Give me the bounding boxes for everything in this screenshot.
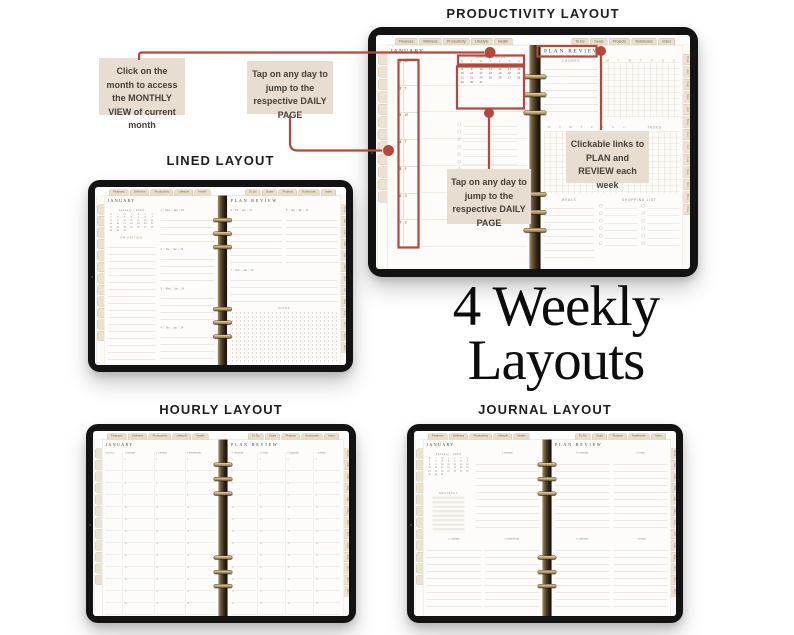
hour-row: 14	[316, 555, 341, 567]
month-tab[interactable]: Nov	[671, 575, 676, 585]
top-tab[interactable]: Productivity	[443, 38, 470, 45]
day-column[interactable]: 2 Tuesday 6789101112131415161718	[154, 452, 185, 615]
side-tab[interactable]	[416, 564, 423, 574]
productivity-left-page: JANUARY 1M2T3W4T5F6S7S January - 2024 MT…	[387, 45, 530, 269]
top-tab[interactable]: Wellness	[419, 38, 442, 45]
top-tab[interactable]: Notebooks	[632, 38, 657, 45]
month-tab[interactable]: Sep	[344, 552, 349, 562]
month-tab[interactable]: May	[344, 506, 349, 516]
month-tab[interactable]: Nov	[344, 575, 349, 585]
hour-row: 8	[288, 483, 313, 495]
hourly-right-columns: 4 Thursday 6789101112131415161718 5 Frid…	[230, 452, 342, 615]
side-tab[interactable]	[95, 495, 102, 505]
month-tab[interactable]: Feb	[344, 472, 349, 482]
month-tab[interactable]: Oct	[341, 320, 346, 330]
week-day-column[interactable]: 1M2T3W4T5F6S7S	[399, 59, 419, 248]
hour-row: 13	[316, 543, 341, 555]
heading-hourly-layout: HOURLY LAYOUT	[86, 402, 356, 417]
big-title-line2: Layouts	[400, 334, 712, 388]
month-tab[interactable]: Oct	[344, 564, 349, 574]
callout-monthly-view: Click on the month to access the MONTHLY…	[99, 58, 185, 115]
hour-row: 17	[288, 591, 313, 603]
top-tab[interactable]: Projects	[609, 38, 630, 45]
day-column[interactable]: 4 Thursday 6789101112131415161718	[230, 452, 258, 615]
hour-row: 8	[232, 483, 257, 495]
month-tab[interactable]: Apr	[683, 104, 690, 115]
tablet-hourly: FinancesWellnessProductivityLifestyleHea…	[86, 424, 356, 623]
hour-row: 14	[288, 555, 313, 567]
shopping-column: SHOPPING LIST	[599, 199, 680, 260]
lined-day-section: 5|Fri|Jan|24	[231, 208, 283, 264]
meals-lines	[544, 202, 594, 260]
binder-ring	[214, 477, 233, 481]
month-tab[interactable]: Plan	[341, 205, 346, 215]
journal-lines	[485, 544, 539, 614]
month-tab[interactable]: Aug	[683, 154, 690, 165]
journal-day-section: 6 Saturday	[555, 538, 609, 614]
journal-lines	[613, 458, 667, 534]
plus-sign[interactable]: +	[619, 126, 630, 129]
month-tab[interactable]: Jan	[341, 216, 346, 226]
side-tab[interactable]	[97, 308, 104, 318]
side-tab[interactable]	[97, 285, 104, 295]
month-tab[interactable]: Jul	[344, 529, 349, 539]
top-tab[interactable]: Index	[658, 38, 675, 45]
month-tab[interactable]: Feb	[683, 79, 690, 90]
hour-row: 18	[156, 603, 184, 615]
side-tab[interactable]	[416, 460, 423, 470]
hourly-screen: FinancesWellnessProductivityLifestyleHea…	[93, 431, 349, 616]
mini-cal-day[interactable]: 28	[514, 76, 523, 80]
mini-cal-day[interactable]: 25	[128, 226, 135, 229]
lined-day-lines	[231, 214, 283, 265]
month-tab[interactable]: Dec	[341, 343, 346, 353]
side-tab[interactable]	[378, 54, 387, 65]
side-tab[interactable]	[416, 552, 423, 562]
hour-row: 17	[316, 591, 341, 603]
lined-sunday-section: 7|Sun|Jan|24	[231, 268, 338, 303]
month-tab[interactable]: Plan	[344, 449, 349, 459]
side-tab[interactable]	[416, 495, 423, 505]
binder-ring	[538, 463, 557, 467]
day-row[interactable]: 4T	[399, 140, 419, 167]
planner-spread: JANUARY HOURS 6789101112131415161718 1 M…	[95, 440, 349, 617]
mini-cal-day[interactable]: 28	[464, 470, 470, 473]
month-tab[interactable]: Sep	[683, 167, 690, 178]
lined-screen: FinancesWellnessProductivityLifestyleHea…	[95, 187, 346, 365]
month-tab[interactable]: Jun	[341, 274, 346, 284]
side-tab[interactable]	[95, 472, 102, 482]
binder-ring	[214, 570, 233, 574]
day-column[interactable]: 6 Saturday 6789101112131415161718	[286, 452, 314, 615]
priorities-label: PRIORITIES	[108, 236, 156, 239]
day-column[interactable]: 5 Friday 6789101112131415161718	[258, 452, 286, 615]
hour-row: 13	[106, 543, 121, 555]
side-tab[interactable]	[416, 472, 423, 482]
side-tab[interactable]	[378, 179, 387, 190]
plan-review-title[interactable]: PLAN REVIEW	[231, 199, 279, 204]
hour-row: 13	[156, 543, 184, 555]
hour-row: 12	[288, 531, 313, 543]
hour-row: 16	[125, 579, 153, 591]
side-tab[interactable]	[378, 167, 387, 178]
camera-dot-icon	[91, 276, 93, 278]
month-tab[interactable]: Aug	[671, 541, 676, 551]
mini-cal-day[interactable]: 31	[121, 229, 128, 232]
mini-cal-day[interactable]: 26	[135, 226, 142, 229]
journal-left-page: JANUARY January - 2024 MTWTFSS 123456789…	[423, 440, 543, 617]
hour-row: 16	[187, 579, 215, 591]
month-tabs: PlanJanFebMarAprMayJunJulAugSepOctNovDec	[683, 45, 690, 269]
big-title-4-weekly-layouts: 4 Weekly Layouts	[400, 280, 712, 388]
chores-lines	[544, 63, 598, 119]
mini-calendar-days: 1234567891011121314151617181920212223242…	[458, 63, 524, 85]
mini-cal-day[interactable]: 29	[458, 80, 467, 84]
month-tab[interactable]: Apr	[341, 251, 346, 261]
mini-cal-day[interactable]: 25	[486, 76, 495, 80]
side-tab[interactable]	[416, 529, 423, 539]
mini-calendar[interactable]: January - 2024 MTWTFSS 12345678910111213…	[108, 208, 156, 232]
hour-row: 16	[156, 579, 184, 591]
month-tab[interactable]: May	[683, 117, 690, 128]
top-tab[interactable]: Health	[494, 38, 512, 45]
lined-day-lines	[231, 274, 338, 304]
side-tab[interactable]	[416, 541, 423, 551]
shopping-subcol	[641, 202, 679, 260]
side-tab[interactable]	[97, 205, 104, 215]
side-tab[interactable]	[378, 154, 387, 165]
side-tab[interactable]	[416, 506, 423, 516]
tasks-weekday-letters: MTWTFSS	[544, 126, 619, 129]
binder-ring	[524, 111, 547, 116]
hour-row: 13	[232, 543, 257, 555]
hour-row: 15	[288, 567, 313, 579]
notes-section: NOTES	[231, 307, 338, 363]
top-tab[interactable]: To Do	[571, 38, 588, 45]
hour-row: 8	[316, 483, 341, 495]
top-tab[interactable]: Finances	[395, 38, 418, 45]
hour-row: 8	[125, 483, 153, 495]
hour-row: 10	[125, 507, 153, 519]
hour-row: 11	[106, 519, 121, 531]
side-tab[interactable]	[95, 449, 102, 459]
journal-right-page: PLAN REVIEW 4 Thursday 5 Friday 6 Saturd…	[552, 440, 672, 617]
binder-ring	[524, 74, 547, 79]
side-tab[interactable]	[95, 529, 102, 539]
day-row[interactable]: 1M	[399, 59, 419, 86]
side-tab[interactable]	[416, 449, 423, 459]
month-tab[interactable]: Feb	[341, 228, 346, 238]
hour-row: 9	[106, 495, 121, 507]
shopping-row	[599, 225, 637, 233]
side-tab[interactable]	[378, 192, 387, 203]
month-tab[interactable]: Nov	[341, 331, 346, 341]
day-column[interactable]: 1 Monday 6789101112131415161718	[123, 452, 154, 615]
side-tab[interactable]	[95, 460, 102, 470]
side-tab[interactable]	[378, 117, 387, 128]
side-tab[interactable]	[95, 483, 102, 493]
binder-ring	[213, 321, 232, 325]
month-tab[interactable]: Mar	[683, 92, 690, 103]
binder-ring	[213, 334, 232, 338]
promo-canvas: PRODUCTIVITY LAYOUT LINED LAYOUT HOURLY …	[0, 0, 794, 635]
hour-row: 12	[260, 531, 285, 543]
month-tab[interactable]: Feb	[671, 472, 676, 482]
hour-row: 13	[260, 543, 285, 555]
mini-cal-day[interactable]: 31	[439, 473, 445, 476]
todo-row	[458, 128, 518, 136]
side-tab[interactable]	[97, 331, 104, 341]
shopping-row	[641, 210, 679, 218]
journal-lines	[555, 458, 609, 534]
month-tab[interactable]: Jun	[671, 518, 676, 528]
hour-row: 6	[316, 459, 341, 471]
tasks-header-row: MTWTFSS + TASKS	[544, 125, 680, 131]
month-tab[interactable]: Aug	[341, 297, 346, 307]
journal-lines	[427, 544, 481, 614]
month-tab[interactable]: Oct	[683, 179, 690, 190]
lined-left-column: January - 2024 MTWTFSS 12345678910111213…	[108, 208, 156, 363]
side-tab[interactable]	[416, 518, 423, 528]
hour-row: 11	[288, 519, 313, 531]
hour-row: 9	[187, 495, 215, 507]
lined-day-lines	[161, 253, 215, 285]
mini-cal-day[interactable]: 30	[467, 80, 476, 84]
hour-row: 12	[125, 531, 153, 543]
journal-lines	[476, 458, 540, 534]
binder-ring	[213, 245, 232, 249]
side-tab[interactable]	[97, 216, 104, 226]
lined-planner: FinancesWellnessProductivityLifestyleHea…	[97, 189, 346, 365]
month-title[interactable]: JANUARY	[427, 443, 455, 448]
lined-left-page: JANUARY January - 2024 MTWTFSS 123456789…	[104, 196, 218, 366]
hour-row: 15	[232, 567, 257, 579]
hour-row: 14	[187, 555, 215, 567]
hour-row: 7	[316, 471, 341, 483]
side-tab[interactable]	[378, 67, 387, 78]
month-tab[interactable]: Apr	[344, 495, 349, 505]
side-tab[interactable]	[97, 274, 104, 284]
binder-spine	[219, 440, 228, 617]
day-row[interactable]: 6S	[399, 193, 419, 220]
hourly-left-columns: HOURS 6789101112131415161718 1 Monday 67…	[105, 452, 217, 615]
todo-row	[458, 121, 518, 129]
chores-column: CHORES	[544, 60, 598, 119]
day-row[interactable]: 7S	[399, 220, 419, 247]
weekday-letter: T	[576, 126, 587, 129]
mini-cal-day[interactable]: 29	[108, 229, 115, 232]
mini-cal-day[interactable]: 27	[505, 76, 514, 80]
heading-lined-layout: LINED LAYOUT	[88, 153, 353, 168]
hour-row: 17	[260, 591, 285, 603]
binder-ring	[214, 556, 233, 560]
weekday-letter: T	[555, 126, 566, 129]
hour-row: 14	[260, 555, 285, 567]
side-tab[interactable]	[97, 297, 104, 307]
hour-row: 7	[260, 471, 285, 483]
hour-row: 14	[106, 555, 121, 567]
side-tab[interactable]	[378, 104, 387, 115]
lined-day-section: 3|Wed|Jan|24	[161, 286, 215, 323]
side-tab[interactable]	[97, 262, 104, 272]
day-row[interactable]: 5F	[399, 166, 419, 193]
hour-row: 14	[232, 555, 257, 567]
month-tab[interactable]: Mar	[344, 483, 349, 493]
side-tab[interactable]	[95, 541, 102, 551]
lined-day-lines	[161, 214, 215, 246]
mini-cal-day[interactable]: 30	[114, 229, 121, 232]
top-tab[interactable]: Lifestyle	[471, 38, 492, 45]
month-title[interactable]: JANUARY	[391, 48, 425, 54]
month-tab[interactable]: Dec	[683, 204, 690, 215]
month-tab[interactable]: Mar	[341, 239, 346, 249]
binder-ring	[538, 570, 557, 574]
month-tab[interactable]: Aug	[344, 541, 349, 551]
plan-review-title[interactable]: PLAN REVIEW	[231, 443, 279, 448]
lined-day-lines	[286, 214, 338, 265]
hour-row: 18	[125, 603, 153, 615]
weekday-letter: S	[608, 126, 619, 129]
planner-spread: JANUARY January - 2024 MTWTFSS 123456789…	[416, 440, 676, 617]
month-tab[interactable]: Jul	[341, 285, 346, 295]
month-tab[interactable]: Oct	[671, 564, 676, 574]
mini-cal-day[interactable]: 26	[495, 76, 504, 80]
top-tab[interactable]: Goals	[590, 38, 607, 45]
month-tab[interactable]: Dec	[671, 587, 676, 597]
day-row[interactable]: 3W	[399, 113, 419, 140]
side-tab[interactable]	[97, 239, 104, 249]
mini-calendar[interactable]: January - 2024 MTWTFSS 12345678910111213…	[427, 452, 471, 476]
plan-review-title[interactable]: PLAN REVIEW	[544, 48, 600, 54]
side-tab[interactable]	[416, 575, 423, 585]
journal-day-section: 7 Sunday	[613, 538, 667, 614]
hour-row: 16	[288, 579, 313, 591]
month-tab[interactable]: May	[671, 506, 676, 516]
chores-habits-section: CHORES MTWTFSS	[544, 60, 680, 119]
month-tab[interactable]: Nov	[683, 192, 690, 203]
month-tab[interactable]: Plan	[671, 449, 676, 459]
shopping-row	[599, 217, 637, 225]
mini-calendar[interactable]: January - 2024 MTWTFSS 12345678910111213…	[458, 55, 524, 85]
side-tab[interactable]	[95, 552, 102, 562]
habit-grid-column: MTWTFSS	[602, 60, 680, 119]
binder-ring	[213, 218, 232, 222]
journal-lines	[555, 544, 609, 614]
month-tab[interactable]: Jun	[683, 129, 690, 140]
hour-row: 6	[187, 459, 215, 471]
shopping-row	[641, 217, 679, 225]
lined-right-top-row: 5|Fri|Jan|24 6|Sat|Jan|24	[231, 208, 338, 264]
hourly-right-page: PLAN REVIEW 4 Thursday 67891011121314151…	[228, 440, 345, 617]
month-tab[interactable]: Plan	[683, 54, 690, 65]
side-tab[interactable]	[95, 518, 102, 528]
month-tab[interactable]: Jul	[671, 529, 676, 539]
journal-screen: FinancesWellnessProductivityLifestyleHea…	[414, 431, 676, 616]
day-column[interactable]: 7 Sunday 6789101112131415161718	[314, 452, 342, 615]
month-tab[interactable]: Jan	[671, 460, 676, 470]
hour-row: 8	[156, 483, 184, 495]
day-row[interactable]: 2T	[399, 86, 419, 113]
hour-row: 7	[187, 471, 215, 483]
month-title[interactable]: JANUARY	[108, 199, 136, 204]
binder-ring	[524, 228, 547, 233]
weekday-letter: W	[565, 126, 576, 129]
hour-row: 12	[156, 531, 184, 543]
shopping-row	[599, 232, 637, 240]
meals-shopping-section: MEALS SHOPPING LIST	[544, 199, 680, 260]
month-title[interactable]: JANUARY	[106, 443, 134, 448]
side-tab[interactable]	[416, 483, 423, 493]
hour-row: 7	[106, 471, 121, 483]
month-tab[interactable]: Jan	[344, 460, 349, 470]
month-tab[interactable]: May	[341, 262, 346, 272]
hour-row: 17	[106, 591, 121, 603]
hour-row: 8	[106, 483, 121, 495]
weekday-letter: M	[544, 126, 555, 129]
todo-row	[458, 143, 518, 151]
plan-review-title[interactable]: PLAN REVIEW	[555, 443, 603, 448]
side-tab[interactable]	[378, 129, 387, 140]
hour-row: 17	[156, 591, 184, 603]
side-tab[interactable]	[95, 506, 102, 516]
side-tab[interactable]	[95, 575, 102, 585]
hour-row: 6	[232, 459, 257, 471]
binder-ring	[538, 477, 557, 481]
side-tab[interactable]	[378, 79, 387, 90]
day-column[interactable]: 3 Wednesday 6789101112131415161718	[185, 452, 216, 615]
side-tab[interactable]	[97, 228, 104, 238]
side-tab[interactable]	[378, 142, 387, 153]
journal-lines	[613, 544, 667, 614]
side-tab[interactable]	[97, 251, 104, 261]
mini-cal-day[interactable]: 31	[476, 80, 485, 84]
side-tab[interactable]	[97, 320, 104, 330]
callout-daily-page-bottom: Tap on any day to jump to the respective…	[447, 169, 531, 224]
hour-row: 14	[156, 555, 184, 567]
binder-ring	[538, 584, 557, 588]
side-tab[interactable]	[95, 564, 102, 574]
month-tab[interactable]: Sep	[341, 308, 346, 318]
side-tab[interactable]	[378, 92, 387, 103]
month-tab[interactable]: Jan	[683, 67, 690, 78]
month-tab[interactable]: Apr	[671, 495, 676, 505]
hour-row: 12	[106, 531, 121, 543]
shopping-rows	[599, 202, 680, 260]
hour-row: 18	[232, 603, 257, 615]
hour-row: 11	[232, 519, 257, 531]
mini-cal-day[interactable]: 27	[142, 226, 149, 229]
hour-row: 18	[260, 603, 285, 615]
habit-grid	[602, 63, 680, 119]
hour-row: 17	[232, 591, 257, 603]
hour-row: 10	[106, 507, 121, 519]
hour-row: 10	[187, 507, 215, 519]
mini-cal-day[interactable]: 28	[149, 226, 156, 229]
priorities-lines	[108, 240, 156, 362]
todo-row	[458, 136, 518, 144]
month-tab[interactable]: Jul	[683, 142, 690, 153]
notes-dot-grid	[231, 311, 338, 363]
month-tab[interactable]: Sep	[671, 552, 676, 562]
month-tab[interactable]: Mar	[671, 483, 676, 493]
month-tab[interactable]: Jun	[344, 518, 349, 528]
journal-planner: FinancesWellnessProductivityLifestyleHea…	[416, 433, 676, 616]
shopping-row	[641, 225, 679, 233]
month-tabs: PlanJanFebMarAprMayJunJulAugSepOctNovDec	[344, 440, 349, 617]
month-tab[interactable]: Dec	[344, 587, 349, 597]
hour-row: 9	[260, 495, 285, 507]
hour-row: 15	[125, 567, 153, 579]
